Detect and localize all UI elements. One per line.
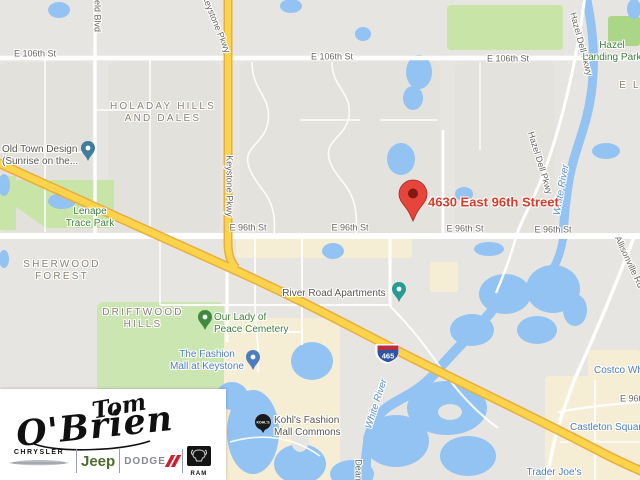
street-label: Dean: [353, 459, 364, 480]
dodge-wordmark: DODGE: [124, 456, 166, 467]
poi-label[interactable]: Old Town Design(Sunrise on the...: [2, 144, 78, 168]
street-label: E 106th St: [14, 49, 56, 60]
street-label: Allisonville Rd: [612, 234, 640, 289]
street-label: Keystone Pkwy: [224, 155, 235, 217]
neighborhood-label: DRIFTWOODHILLS: [102, 307, 183, 331]
street-label: E 96th St: [229, 223, 266, 234]
poi-label[interactable]: Castleton Square: [570, 422, 640, 434]
chrysler-wings-icon: [7, 458, 71, 469]
neighborhood-label: E L: [619, 80, 640, 92]
brand-logos-row: CHRYSLER Jeep DODGE: [6, 446, 220, 476]
brand-divider: [119, 449, 120, 473]
dealer-logo-box: Tom O'Brien CHRYSLER Jeep DODGE: [0, 389, 226, 480]
poi-label[interactable]: Costco Wholesale: [594, 365, 640, 377]
street-label: Hazel Dell Pkwy: [525, 130, 554, 195]
brand-divider: [182, 449, 183, 473]
street-label: E 96th St: [331, 223, 368, 234]
street-label: eld Blvd: [92, 0, 103, 32]
poi-label[interactable]: The FashionMall at Keystone: [170, 349, 244, 373]
street-label: E 96th St: [534, 225, 571, 236]
street-label: Keystone Pkwy: [199, 0, 232, 55]
street-label: E 106th St: [311, 52, 353, 63]
poi-label[interactable]: Kohl's FashionMall Commons: [274, 415, 341, 439]
street-label: E 106th St: [487, 54, 529, 65]
ram-head-icon: [187, 446, 211, 466]
marker-address-label: 4630 East 96th Street: [428, 195, 559, 210]
poi-label[interactable]: Trader Joe's: [527, 467, 582, 479]
dodge-logo: DODGE: [124, 455, 178, 467]
street-label: E 96th St: [620, 394, 640, 405]
brand-divider: [76, 449, 77, 473]
neighborhood-label: SHERWOODFOREST: [23, 259, 100, 283]
park-label: HazelLanding Park: [583, 40, 640, 64]
park-label: LenapeTrace Park: [66, 206, 115, 230]
street-label: E 96th St: [446, 224, 483, 235]
poi-label[interactable]: Our Lady ofPeace Cemetery: [214, 312, 288, 336]
chrysler-logo: CHRYSLER: [6, 449, 72, 474]
neighborhood-label: HOLADAY HILLSAND DALES: [110, 101, 216, 125]
jeep-wordmark: Jeep: [81, 453, 115, 470]
ram-logo: RAM: [187, 446, 211, 477]
poi-label[interactable]: River Road Apartments: [282, 288, 385, 300]
chrysler-wordmark: CHRYSLER: [6, 449, 72, 456]
ram-wordmark: RAM: [187, 471, 211, 477]
water-label: White River: [363, 378, 390, 431]
map-screenshot: 465 KOHL'S E 106th StE 106th StE 10: [0, 0, 640, 480]
